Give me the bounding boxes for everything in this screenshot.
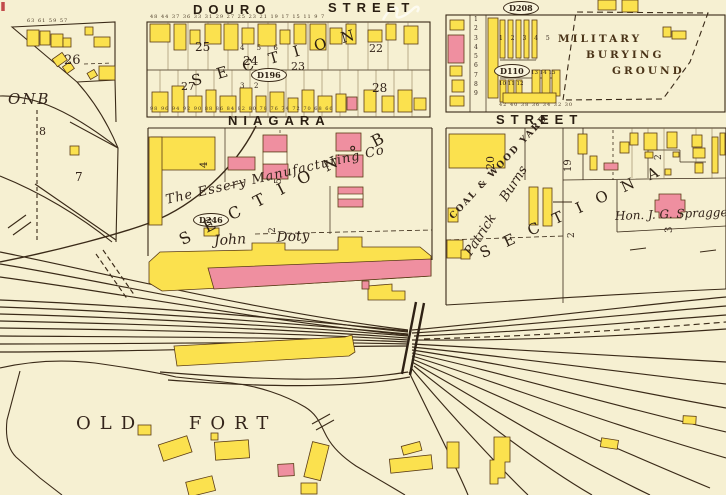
lot-22: 22 — [369, 43, 383, 54]
lot-25: 25 — [195, 41, 210, 53]
lot-20: 20 — [485, 156, 496, 170]
old-fort-label: OLD FORT — [76, 415, 277, 433]
lot-row-13-15: 13 14 15 — [531, 71, 556, 77]
lot-19: 19 — [564, 159, 574, 172]
lot-8: 8 — [39, 126, 46, 137]
lot-2-essery: 2 — [269, 227, 278, 233]
street-label-douro-suffix: STREET — [328, 1, 415, 14]
section-b-partial-label: ONB — [8, 92, 50, 107]
addresses-douro-north: 48 44 37 36 33 31 29 27 25 23 21 19 17 1… — [150, 15, 422, 20]
lot-24: 24 — [243, 55, 258, 67]
lot-2-houses: 2 — [655, 154, 664, 160]
spragge-label: Hon. J. G. Spragge — [615, 206, 726, 222]
lot-27: 27 — [181, 81, 195, 92]
lot-column-1-9: 1 2 3 4 5 6 7 8 9 — [474, 15, 478, 99]
lot-3-spragge: 3 — [665, 227, 675, 233]
lot-row-10-12: 10 11 12 — [499, 82, 524, 88]
rail-bridge — [402, 302, 424, 375]
addresses-niagara-north: 98 96 94 92 90 88 86 84 82 80 78 76 74 7… — [150, 107, 418, 112]
addresses-east-block: 42 40 38 36 34 32 30 — [499, 103, 573, 108]
military-burying-ground-label-1: MILITARY — [558, 34, 642, 45]
goad-insurance-map: DOURO STREET NIAGARA STREET D208 D110 D1… — [0, 0, 726, 495]
lot-28: 28 — [372, 82, 387, 94]
lot-5-essery: 5 — [275, 178, 284, 184]
lot-7: 7 — [75, 171, 83, 183]
military-burying-ground-label-3: GROUND — [612, 66, 685, 77]
lot-small-2: 2 — [254, 83, 258, 90]
plate-d208: D208 — [503, 1, 539, 15]
plate-d110: D110 — [494, 64, 530, 78]
street-label-niagara: NIAGARA — [228, 114, 331, 127]
addresses-nw: 63 61 59 57 — [27, 19, 68, 24]
lot-4-5-6: 4 5 6 — [240, 45, 283, 52]
lot-small-3: 3 — [240, 83, 244, 90]
lot-row-1-5: 1 2 3 4 5 — [499, 36, 553, 42]
lot-4-essery: 4 — [200, 162, 210, 168]
lot-23: 23 — [291, 61, 305, 72]
lot-2-burns: 2 — [568, 232, 577, 238]
military-burying-ground-label-2: BURYING — [586, 50, 664, 61]
lot-26: 26 — [64, 54, 81, 67]
